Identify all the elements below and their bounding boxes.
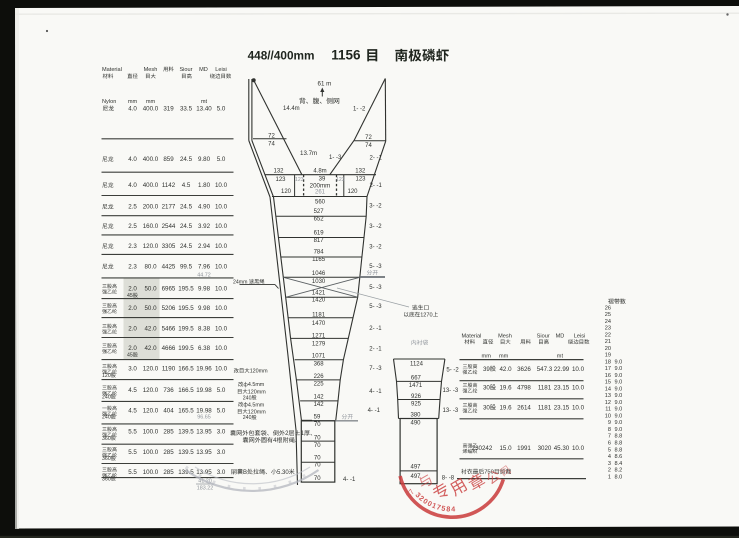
svg-text:360: 360	[102, 436, 111, 442]
svg-text:9.0: 9.0	[615, 420, 623, 426]
svg-text:195.5: 195.5	[178, 305, 194, 312]
svg-text:4.5: 4.5	[128, 408, 137, 415]
svg-text:240: 240	[243, 415, 252, 421]
svg-text:1421: 1421	[312, 291, 326, 297]
svg-text:8: 8	[446, 504, 451, 513]
svg-text:9: 9	[608, 420, 611, 426]
svg-text:1470: 1470	[312, 321, 326, 327]
svg-text:8.8: 8.8	[615, 434, 623, 440]
svg-text:667: 667	[411, 375, 422, 381]
svg-text:497: 497	[410, 464, 421, 470]
svg-text:4.0: 4.0	[128, 182, 137, 189]
svg-text:2.94: 2.94	[198, 243, 211, 250]
svg-text:261: 261	[315, 190, 326, 196]
svg-text:9.98: 9.98	[198, 286, 211, 293]
svg-text:139.5: 139.5	[178, 449, 194, 456]
svg-text:5.0: 5.0	[217, 105, 226, 112]
svg-text:24.5: 24.5	[180, 243, 193, 250]
svg-text:5- -2: 5- -2	[446, 368, 459, 374]
svg-text:199.5: 199.5	[178, 345, 194, 352]
svg-text:132: 132	[355, 168, 366, 174]
svg-text:4.0: 4.0	[128, 105, 137, 112]
svg-text:859: 859	[163, 156, 174, 163]
svg-text:2.0: 2.0	[128, 345, 137, 352]
svg-text:285: 285	[163, 429, 174, 436]
svg-text:mm: mm	[499, 353, 509, 359]
svg-text:2.0: 2.0	[128, 286, 137, 293]
svg-text:5.0: 5.0	[217, 387, 226, 394]
svg-text:4- -1: 4- -1	[343, 477, 356, 483]
svg-text:MD: MD	[556, 333, 565, 339]
svg-text:70: 70	[314, 456, 321, 462]
svg-text:5: 5	[608, 447, 611, 453]
svg-text:14.4m: 14.4m	[283, 106, 300, 112]
svg-text:1190: 1190	[162, 366, 176, 373]
svg-text:1279: 1279	[312, 341, 326, 347]
svg-text:1030: 1030	[312, 279, 326, 285]
svg-text:120.0: 120.0	[143, 243, 159, 250]
svg-text:5- -3: 5- -3	[369, 304, 382, 310]
svg-text:4.5: 4.5	[182, 182, 191, 189]
svg-text:400.0: 400.0	[143, 105, 159, 112]
svg-text:9.0: 9.0	[615, 427, 623, 433]
svg-text:26: 26	[605, 305, 611, 311]
svg-text:25: 25	[605, 312, 611, 318]
svg-text:24.5: 24.5	[180, 204, 193, 211]
svg-text:285: 285	[163, 469, 174, 476]
svg-text:9.98: 9.98	[198, 305, 211, 312]
svg-text:8.8: 8.8	[615, 447, 623, 453]
svg-text:1071: 1071	[312, 354, 326, 360]
svg-text:16: 16	[605, 373, 611, 379]
svg-text:10.0: 10.0	[215, 286, 228, 293]
svg-text:13.95: 13.95	[196, 429, 212, 436]
svg-text:72: 72	[268, 133, 275, 139]
svg-text:9.0: 9.0	[615, 380, 623, 386]
svg-text:mm: mm	[128, 99, 138, 105]
svg-text:652: 652	[314, 217, 325, 223]
svg-text:497: 497	[410, 474, 421, 480]
svg-text:1270: 1270	[420, 313, 432, 319]
svg-text:17: 17	[605, 366, 611, 372]
svg-text:10.0: 10.0	[572, 385, 585, 392]
svg-text:8.2: 8.2	[615, 468, 623, 474]
svg-text:2614: 2614	[517, 405, 531, 412]
svg-text:1046: 1046	[312, 271, 326, 277]
svg-text:9.0: 9.0	[615, 400, 623, 406]
svg-text:Leisi: Leisi	[215, 67, 227, 73]
svg-text:1181: 1181	[538, 385, 552, 392]
svg-text:123: 123	[275, 177, 286, 183]
svg-text:22: 22	[605, 332, 611, 338]
svg-text:619: 619	[314, 230, 325, 236]
svg-text:2- -1: 2- -1	[370, 155, 383, 161]
svg-text:3626: 3626	[517, 366, 531, 373]
svg-text:4425: 4425	[162, 263, 176, 270]
svg-text:120.0: 120.0	[143, 408, 159, 415]
svg-text:10.0: 10.0	[215, 326, 228, 333]
svg-text:5206: 5206	[162, 305, 176, 312]
svg-text:13.7m: 13.7m	[300, 150, 317, 157]
svg-text:5.5: 5.5	[128, 469, 137, 476]
svg-text:1471: 1471	[409, 383, 423, 389]
svg-text:59: 59	[314, 415, 321, 421]
svg-text:4: 4	[608, 454, 611, 460]
svg-text:100.0: 100.0	[143, 469, 159, 476]
svg-text:8.8: 8.8	[615, 441, 623, 447]
svg-text:19.98: 19.98	[196, 408, 212, 415]
svg-text:10.0: 10.0	[215, 243, 228, 250]
svg-text:319: 319	[163, 105, 174, 112]
svg-text:4666: 4666	[162, 345, 176, 352]
svg-text:4.90: 4.90	[198, 204, 211, 211]
svg-text:72: 72	[365, 135, 372, 141]
svg-text:Leisi: Leisi	[574, 333, 586, 339]
svg-text:230242: 230242	[472, 445, 493, 452]
svg-text:9.0: 9.0	[615, 407, 623, 413]
svg-text:6965: 6965	[162, 286, 176, 293]
svg-text:8- -8: 8- -8	[442, 476, 455, 482]
svg-text:39: 39	[483, 366, 490, 373]
svg-text:13- -3: 13- -3	[443, 388, 459, 394]
svg-text:3.0: 3.0	[217, 429, 226, 436]
svg-text:2: 2	[608, 468, 611, 474]
svg-text:9.0: 9.0	[615, 413, 623, 419]
svg-text:Material: Material	[102, 67, 122, 73]
svg-text:45: 45	[127, 353, 133, 359]
svg-text:547.3: 547.3	[537, 366, 553, 373]
svg-text:2.3: 2.3	[128, 263, 137, 270]
svg-text:mt: mt	[557, 353, 564, 359]
svg-text:926: 926	[411, 394, 422, 400]
svg-text:2- -1: 2- -1	[369, 347, 382, 353]
svg-text:mt: mt	[201, 99, 208, 105]
svg-text:10.0: 10.0	[215, 204, 228, 211]
svg-text:8.6: 8.6	[615, 454, 623, 460]
svg-text:10.0: 10.0	[572, 366, 585, 373]
svg-text:9.80: 9.80	[198, 156, 211, 163]
svg-text:2- -1: 2- -1	[369, 326, 382, 332]
svg-text:70: 70	[314, 435, 321, 441]
svg-text:4- -1: 4- -1	[368, 408, 381, 414]
svg-text:2.5: 2.5	[128, 223, 137, 230]
svg-text:19.96: 19.96	[196, 366, 212, 373]
svg-text:13: 13	[605, 393, 611, 399]
svg-text:9.0: 9.0	[615, 393, 623, 399]
svg-text:Siour: Siour	[537, 333, 550, 339]
svg-text:1.80: 1.80	[198, 182, 211, 189]
svg-text:7- -3: 7- -3	[369, 366, 382, 372]
svg-text:15: 15	[605, 380, 611, 386]
svg-text:2177: 2177	[162, 204, 176, 211]
svg-text:123: 123	[295, 177, 304, 183]
svg-text:2.0: 2.0	[128, 326, 137, 333]
svg-text:120: 120	[347, 189, 358, 195]
svg-text:70: 70	[314, 476, 321, 482]
svg-text:183.22: 183.22	[197, 485, 214, 491]
svg-text:42.0: 42.0	[144, 326, 157, 333]
svg-text:490: 490	[410, 420, 421, 426]
svg-text:10.0: 10.0	[572, 405, 585, 412]
svg-text:3.0: 3.0	[128, 366, 137, 373]
svg-text:MD: MD	[199, 67, 208, 73]
svg-text:19.6: 19.6	[499, 385, 512, 392]
svg-text:6: 6	[608, 441, 611, 447]
svg-text:120.0: 120.0	[143, 366, 159, 373]
svg-text:6.38: 6.38	[198, 345, 211, 352]
svg-text:368: 368	[314, 361, 325, 367]
svg-text:1142: 1142	[162, 182, 176, 189]
svg-text:7.96: 7.96	[198, 263, 211, 270]
svg-text:Mesh: Mesh	[144, 67, 158, 73]
svg-text:3305: 3305	[162, 243, 176, 250]
svg-text:285: 285	[163, 449, 174, 456]
svg-text:1181: 1181	[538, 405, 552, 412]
svg-text:45.30: 45.30	[554, 445, 570, 452]
svg-text:1- -2: 1- -2	[353, 107, 366, 113]
svg-text:10.0: 10.0	[215, 345, 228, 352]
svg-text:160.0: 160.0	[143, 223, 159, 230]
svg-text:13.40: 13.40	[196, 105, 212, 112]
svg-text:4798: 4798	[517, 385, 531, 392]
svg-text:400.0: 400.0	[143, 156, 159, 163]
svg-text:1165: 1165	[312, 257, 326, 263]
svg-text:1- -3: 1- -3	[329, 155, 342, 161]
svg-text:5.0: 5.0	[217, 408, 226, 415]
svg-text:240: 240	[243, 395, 252, 401]
svg-text:50.0: 50.0	[144, 305, 157, 312]
svg-text:448//400mm: 448//400mm	[248, 48, 315, 62]
svg-text:199.5: 199.5	[178, 326, 194, 333]
svg-text:142: 142	[314, 402, 325, 408]
svg-text:100.0: 100.0	[143, 449, 159, 456]
svg-text:1124: 1124	[410, 361, 424, 367]
svg-text:10.0: 10.0	[215, 263, 228, 270]
svg-text:19: 19	[605, 353, 611, 359]
svg-text:3- -2: 3- -2	[369, 203, 382, 209]
svg-text:50.0: 50.0	[144, 286, 157, 293]
svg-text:5.30: 5.30	[277, 470, 289, 476]
svg-text:3.0: 3.0	[217, 469, 226, 476]
svg-text:3.0: 3.0	[217, 449, 226, 456]
svg-text:404: 404	[163, 408, 174, 415]
svg-text:1271: 1271	[312, 333, 326, 339]
svg-text:200mm: 200mm	[310, 183, 331, 190]
svg-text:18: 18	[605, 359, 611, 365]
svg-text:560: 560	[315, 199, 326, 205]
svg-text:8.4: 8.4	[615, 461, 623, 467]
svg-text:2.3: 2.3	[128, 243, 137, 250]
svg-text:Material: Material	[462, 333, 482, 339]
svg-text:380: 380	[410, 413, 421, 419]
svg-text:23.15: 23.15	[554, 405, 570, 412]
svg-text:9.0: 9.0	[615, 386, 623, 392]
svg-text:96.65: 96.65	[197, 415, 211, 421]
svg-text:3020: 3020	[538, 445, 552, 452]
svg-text:8.0: 8.0	[615, 474, 623, 480]
svg-text:817: 817	[314, 238, 325, 244]
svg-text:24.5: 24.5	[180, 223, 193, 230]
svg-text:mm: mm	[482, 353, 492, 359]
svg-text:10.0: 10.0	[215, 182, 228, 189]
svg-text:1420: 1420	[312, 297, 326, 303]
svg-text:61 m: 61 m	[318, 81, 332, 88]
svg-text:120.0: 120.0	[143, 387, 159, 394]
svg-text:200.0: 200.0	[143, 204, 159, 211]
svg-text:Nylon: Nylon	[102, 99, 116, 105]
svg-text:2- -1: 2- -1	[370, 183, 383, 189]
svg-text:10.0: 10.0	[572, 445, 585, 452]
svg-text:70: 70	[314, 443, 321, 449]
svg-text:8: 8	[608, 427, 611, 433]
svg-text:139.5: 139.5	[178, 429, 194, 436]
svg-text:11: 11	[605, 407, 611, 413]
svg-text:1156: 1156	[331, 47, 361, 62]
svg-text:4- -1: 4- -1	[369, 389, 382, 395]
svg-text:120: 120	[281, 189, 292, 195]
svg-text:123: 123	[336, 177, 345, 183]
svg-text:24.5: 24.5	[180, 156, 193, 163]
svg-text:2.5: 2.5	[128, 204, 137, 211]
svg-text:4.5mm: 4.5mm	[248, 402, 265, 408]
svg-text:123: 123	[355, 177, 366, 183]
svg-text:80.0: 80.0	[144, 263, 157, 270]
svg-text:12: 12	[605, 400, 611, 406]
svg-text:925: 925	[411, 401, 422, 407]
svg-text:23.15: 23.15	[554, 385, 570, 392]
svg-text:1: 1	[608, 474, 611, 480]
svg-text:20: 20	[605, 346, 611, 352]
svg-text:70: 70	[314, 463, 321, 469]
svg-text:10.0: 10.0	[215, 305, 228, 312]
svg-text:19.6: 19.6	[499, 405, 512, 412]
svg-text:5.5: 5.5	[128, 449, 137, 456]
svg-text:5- -3: 5- -3	[369, 264, 382, 270]
svg-text:7: 7	[608, 434, 611, 440]
svg-text:13.95: 13.95	[196, 449, 212, 456]
svg-text:22.99: 22.99	[554, 366, 570, 373]
svg-text:5.0: 5.0	[217, 156, 226, 163]
svg-text:527: 527	[314, 209, 325, 215]
svg-text:225: 225	[314, 381, 325, 387]
svg-text:74: 74	[268, 141, 275, 147]
svg-text:23: 23	[605, 326, 611, 332]
svg-text:2.0: 2.0	[128, 305, 137, 312]
svg-text:15.0: 15.0	[499, 445, 512, 452]
svg-text:3.92: 3.92	[198, 223, 211, 230]
svg-text:2544: 2544	[162, 223, 176, 230]
svg-text:4.5mm: 4.5mm	[248, 382, 265, 388]
svg-text:30: 30	[483, 405, 490, 412]
svg-text:120: 120	[102, 373, 111, 379]
svg-text:1181: 1181	[312, 313, 326, 319]
svg-text:99.5: 99.5	[180, 263, 193, 270]
svg-text:9.0: 9.0	[615, 366, 623, 372]
svg-text:42.0: 42.0	[144, 345, 157, 352]
svg-text:360: 360	[102, 456, 111, 462]
svg-text:3- -2: 3- -2	[369, 245, 382, 251]
svg-text:3: 3	[608, 461, 611, 467]
svg-text:4.0: 4.0	[128, 156, 137, 163]
svg-text:240: 240	[102, 415, 111, 421]
svg-text:100.0: 100.0	[143, 429, 159, 436]
svg-text:Siour: Siour	[179, 67, 192, 73]
svg-text:74: 74	[365, 143, 372, 149]
svg-text:9.0: 9.0	[615, 359, 623, 365]
svg-text:33.5: 33.5	[180, 105, 193, 112]
svg-text:19.98: 19.98	[196, 387, 212, 394]
svg-text:8.38: 8.38	[198, 326, 211, 333]
svg-text:4.5: 4.5	[128, 387, 137, 394]
svg-text:14: 14	[605, 386, 611, 392]
svg-text:3- -2: 3- -2	[369, 224, 382, 230]
svg-text:784: 784	[314, 250, 325, 256]
svg-text:226: 226	[314, 374, 325, 380]
svg-text:166.5: 166.5	[178, 366, 194, 373]
svg-text:132: 132	[273, 168, 284, 174]
svg-text:9.0: 9.0	[615, 373, 623, 379]
svg-text:166.5: 166.5	[178, 387, 194, 394]
svg-text:400.0: 400.0	[143, 182, 159, 189]
svg-text:21: 21	[605, 339, 611, 345]
svg-text:736: 736	[163, 387, 174, 394]
svg-text:240: 240	[102, 395, 111, 401]
svg-text:mm: mm	[146, 99, 156, 105]
svg-text:4.8m: 4.8m	[313, 168, 326, 174]
svg-text:10.0: 10.0	[215, 223, 228, 230]
svg-text:142: 142	[314, 395, 325, 401]
svg-text:5.5: 5.5	[128, 429, 137, 436]
svg-text:1991: 1991	[517, 445, 531, 452]
svg-text:B: B	[243, 470, 247, 476]
svg-text:120mm: 120mm	[250, 369, 268, 375]
svg-text:13- -3: 13- -3	[443, 408, 459, 414]
svg-text:42.0: 42.0	[499, 366, 512, 373]
svg-text:24: 24	[605, 319, 611, 325]
svg-text:5466: 5466	[162, 326, 176, 333]
svg-text:195.5: 195.5	[178, 286, 194, 293]
svg-text:4: 4	[451, 504, 455, 513]
svg-text:165.5: 165.5	[178, 408, 194, 415]
svg-text:10: 10	[605, 413, 611, 419]
svg-text:70: 70	[314, 422, 321, 428]
svg-text:30: 30	[483, 385, 490, 392]
svg-text:Mesh: Mesh	[498, 333, 512, 339]
svg-text:5- -3: 5- -3	[369, 285, 382, 291]
svg-text:10.0: 10.0	[215, 366, 228, 373]
